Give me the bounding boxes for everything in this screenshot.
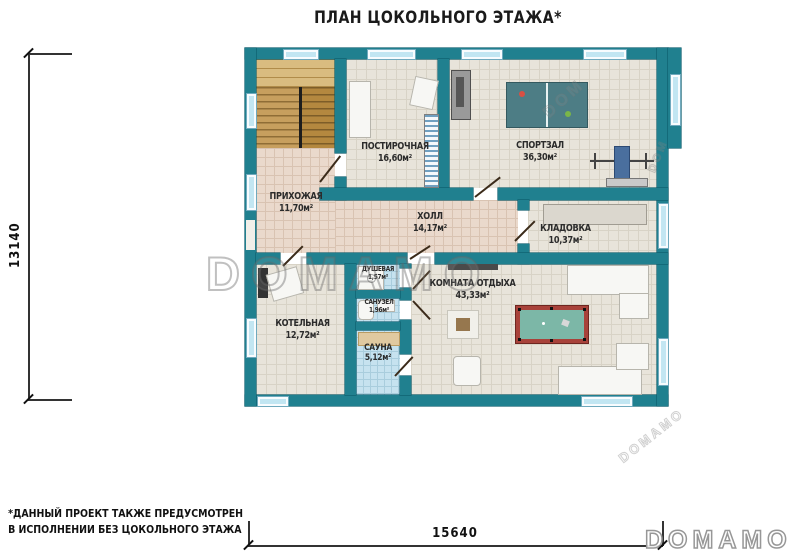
room-name: САУНА	[351, 343, 404, 353]
billiard-pocket	[550, 307, 553, 310]
wall-hall-storage-a	[518, 200, 529, 210]
exercise-machine	[451, 70, 471, 120]
room-label-boiler: КОТЕЛЬНАЯ 12,72м²	[257, 318, 347, 341]
billiard-pocket	[583, 308, 586, 311]
wall-mid-horizontal-a	[320, 188, 473, 200]
coffee-table-top	[456, 318, 470, 331]
weight-bench	[614, 146, 630, 182]
window-top-2	[367, 49, 416, 60]
window-left-3	[246, 318, 257, 358]
footnote: *ДАННЫЙ ПРОЕКТ ТАКЖЕ ПРЕДУСМОТРЕН В ИСПО…	[8, 506, 240, 538]
room-area: 16,60м²	[348, 153, 443, 165]
billiard-table	[515, 305, 589, 344]
room-label-storage: КЛАДОВКА 10,37м²	[516, 223, 616, 246]
dimension-line-bottom	[248, 545, 663, 547]
window-left-1	[246, 93, 257, 129]
footnote-line-2: В ИСПОЛНЕНИИ БЕЗ ЦОКОЛЬНОГО ЭТАЖА	[8, 522, 240, 538]
wall-mid-horizontal-b	[498, 188, 668, 200]
dimension-height-label: 13140	[8, 188, 23, 268]
billiard-pocket	[583, 338, 586, 341]
sofa-top	[567, 265, 649, 295]
window-right-3	[658, 338, 669, 386]
stairs	[256, 59, 335, 148]
room-area: 12,72м²	[257, 330, 347, 342]
window-top-3	[461, 49, 503, 60]
stairs-landing	[256, 59, 335, 87]
window-bottom-1	[257, 396, 289, 407]
barbell-plate-left	[594, 153, 596, 169]
billiard-ball	[542, 322, 545, 325]
billiard-felt	[520, 310, 584, 339]
window-top-4	[583, 49, 627, 60]
footnote-line-1: *ДАННЫЙ ПРОЕКТ ТАКЖЕ ПРЕДУСМОТРЕН	[8, 506, 240, 522]
domamo-logo: DOMAMO	[645, 526, 792, 555]
bench-base	[606, 178, 648, 187]
billiard-pocket	[518, 338, 521, 341]
room-area: 11,70м²	[252, 203, 339, 215]
billiard-pocket	[518, 308, 521, 311]
sofa-bottom-corner	[616, 343, 649, 370]
pingpong-paddle-red	[519, 91, 525, 97]
room-label-sauna: САУНА 5,12м²	[351, 343, 404, 363]
sofa-top-corner	[619, 293, 649, 319]
exercise-machine-detail	[456, 77, 464, 107]
wall-wet-lounge-d	[400, 376, 411, 395]
room-area: 5,12м²	[351, 353, 404, 363]
sofa-bottom	[558, 366, 642, 395]
stairs-steps-left	[256, 87, 301, 148]
room-name: ПОСТИРОЧНАЯ	[348, 141, 443, 153]
room-name: ХОЛЛ	[387, 211, 473, 223]
room-area: 14,17м²	[387, 223, 473, 235]
coffee-table	[447, 310, 479, 339]
billiard-pocket	[550, 339, 553, 342]
room-name: КОТЕЛЬНАЯ	[257, 318, 347, 330]
page-title: ПЛАН ЦОКОЛЬНОГО ЭТАЖА*	[314, 8, 562, 28]
room-area: 10,37м²	[516, 235, 616, 247]
window-right-2	[658, 203, 669, 249]
room-label-gym: СПОРТЗАЛ 36,30м²	[493, 140, 588, 163]
page: { "title": "ПЛАН ЦОКОЛЬНОГО ЭТАЖА*", "pl…	[0, 0, 800, 558]
armchair	[453, 356, 481, 386]
room-name: КЛАДОВКА	[516, 223, 616, 235]
room-label-hallway: ПРИХОЖАЯ 11,70м²	[252, 191, 339, 214]
room-label-hall: ХОЛЛ 14,17м²	[387, 211, 473, 234]
wall-wc-sauna	[356, 322, 400, 330]
dimension-width-label: 15640	[405, 526, 505, 541]
window-right-1	[670, 74, 681, 126]
dimension-tick-top-left	[28, 53, 72, 55]
stairs-steps-right	[301, 87, 335, 148]
wall-laundry-gym	[438, 59, 449, 188]
watermark-small-bottom: DOMAMO	[616, 405, 687, 465]
window-bottom-2	[581, 396, 633, 407]
dimension-line-left	[28, 53, 30, 400]
watermark-main: DOMAMO	[206, 246, 491, 301]
room-name: СПОРТЗАЛ	[493, 140, 588, 152]
washing-machine	[349, 81, 371, 138]
room-area: 36,30м²	[493, 152, 588, 164]
dimension-tick-bottom-left	[28, 399, 72, 401]
window-top-1	[283, 49, 319, 60]
pingpong-paddle-green	[565, 111, 571, 117]
wall-stairs-laundry-a	[335, 59, 346, 153]
room-name: ПРИХОЖАЯ	[252, 191, 339, 203]
floor-plan: ПОСТИРОЧНАЯ 16,60м² СПОРТЗАЛ 36,30м² ПРИ…	[245, 48, 668, 406]
stairs-rail	[299, 87, 302, 148]
storage-shelf	[543, 204, 647, 225]
room-label-laundry: ПОСТИРОЧНАЯ 16,60м²	[348, 141, 443, 164]
room-area: 1,96м²	[352, 306, 405, 314]
